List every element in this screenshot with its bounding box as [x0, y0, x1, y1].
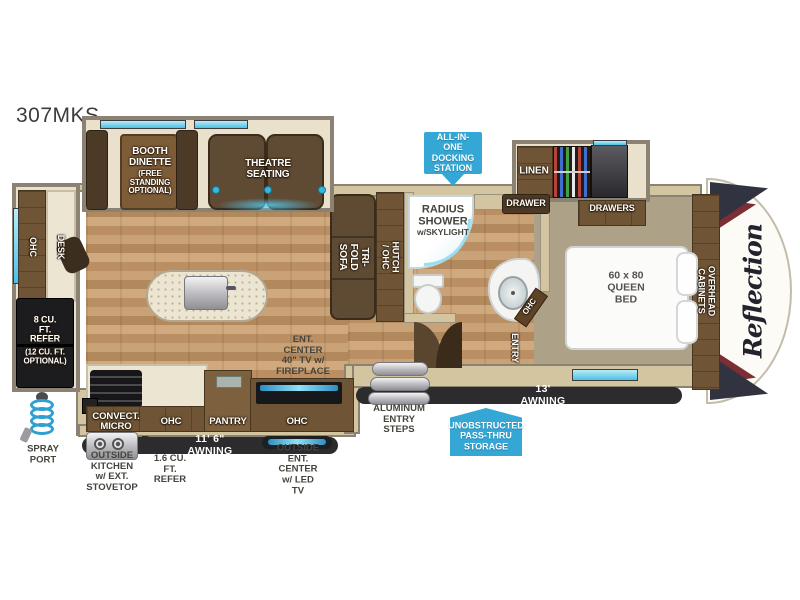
theatre-window [194, 120, 248, 129]
spray-hose-coil-4 [30, 423, 54, 435]
outside-burner-left [94, 438, 106, 450]
booth-bench-right [176, 130, 198, 210]
sink-drain [511, 291, 515, 295]
bed-pillow-bottom [676, 300, 698, 344]
spray-nozzle [19, 427, 32, 443]
island-sink [184, 276, 228, 310]
entry-step-2 [370, 377, 430, 391]
wardrobe-rod [554, 171, 590, 173]
bedroom-slide-window [593, 140, 627, 146]
dinette-window [100, 120, 186, 129]
outside-burner-right [112, 438, 124, 450]
pantry-vent [216, 376, 242, 388]
bedroom-window [572, 369, 638, 381]
entry-step-1 [372, 362, 428, 376]
toilet-bowl [414, 284, 442, 314]
booth-bench-left [86, 130, 108, 210]
theatre-glow [216, 198, 320, 212]
cupholder-center [264, 186, 272, 194]
cupholder-right [318, 186, 326, 194]
rear-slide-window [13, 208, 19, 284]
bedroom-tv [591, 145, 628, 198]
wardrobe [553, 146, 591, 198]
island-faucet [226, 286, 236, 290]
bed-pillow-top [676, 252, 698, 296]
floorplan-canvas: 307MKS Reflection [0, 0, 800, 600]
cupholder-left [212, 186, 220, 194]
wall-bath-bottom [404, 313, 456, 323]
entertainment-tv-screen [260, 385, 338, 391]
